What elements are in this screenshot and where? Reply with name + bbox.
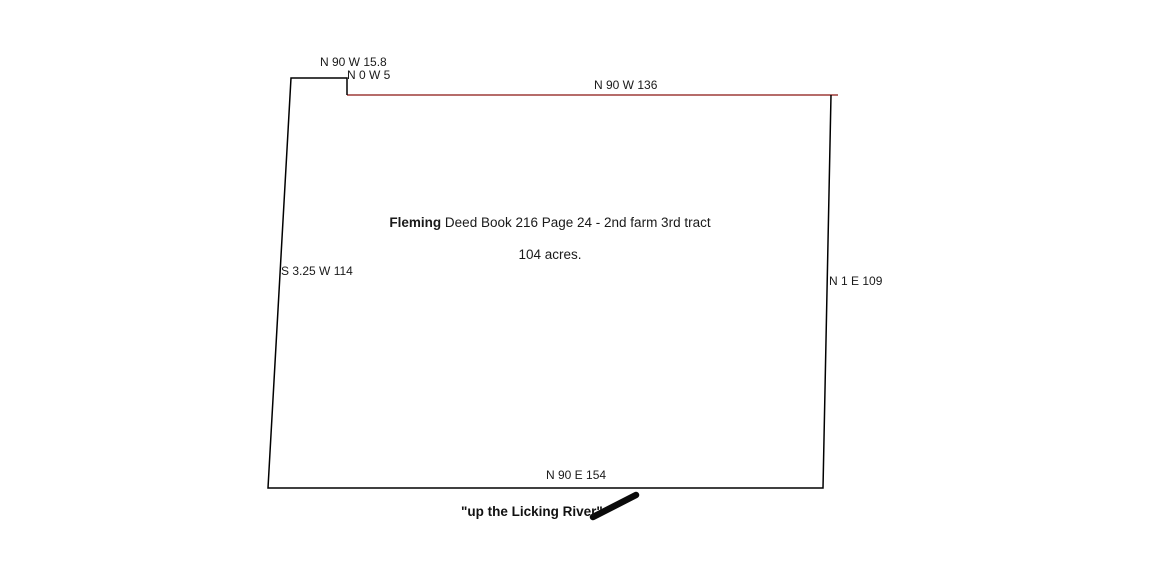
tract-title: Fleming Deed Book 216 Page 24 - 2nd farm… bbox=[300, 215, 800, 230]
bearing-label-top: N 90 W 136 bbox=[594, 79, 657, 92]
tract-deed-reference: Deed Book 216 Page 24 - 2nd farm 3rd tra… bbox=[441, 215, 710, 230]
tract-outline bbox=[268, 78, 831, 488]
bearing-label-right: N 1 E 109 bbox=[829, 275, 882, 288]
bearing-label-notch-drop: N 0 W 5 bbox=[347, 69, 390, 82]
plat-canvas: N 90 W 15.8 N 0 W 5 N 90 W 136 S 3.25 W … bbox=[0, 0, 1150, 567]
bearing-label-bottom: N 90 E 154 bbox=[546, 469, 606, 482]
tract-acreage: 104 acres. bbox=[300, 247, 800, 262]
tract-owner-name: Fleming bbox=[389, 215, 441, 230]
bearing-label-left: S 3.25 W 114 bbox=[281, 265, 353, 278]
river-annotation: "up the Licking River" bbox=[461, 504, 603, 519]
